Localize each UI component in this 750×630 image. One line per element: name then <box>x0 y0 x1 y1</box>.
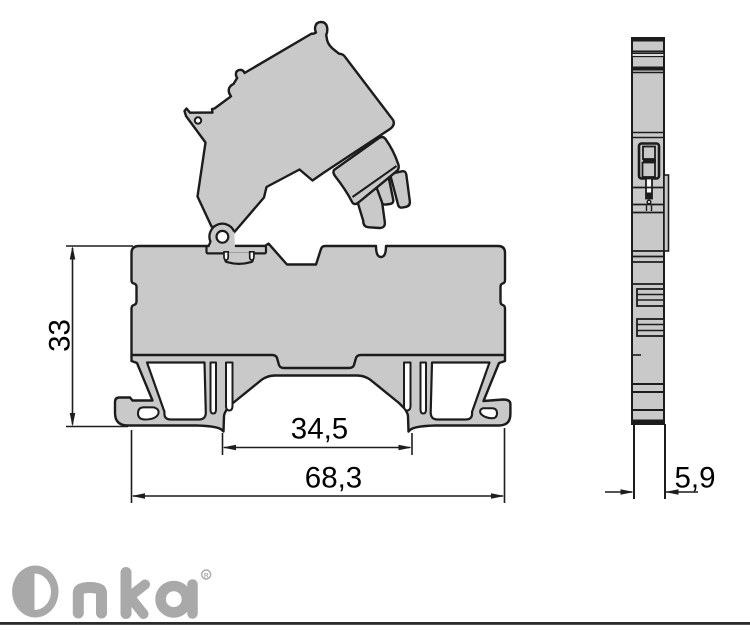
svg-text:68,3: 68,3 <box>305 462 362 495</box>
svg-text:34,5: 34,5 <box>291 413 348 446</box>
svg-text:33: 33 <box>43 319 76 352</box>
svg-text:R: R <box>204 572 209 579</box>
svg-text:5,9: 5,9 <box>674 462 715 495</box>
